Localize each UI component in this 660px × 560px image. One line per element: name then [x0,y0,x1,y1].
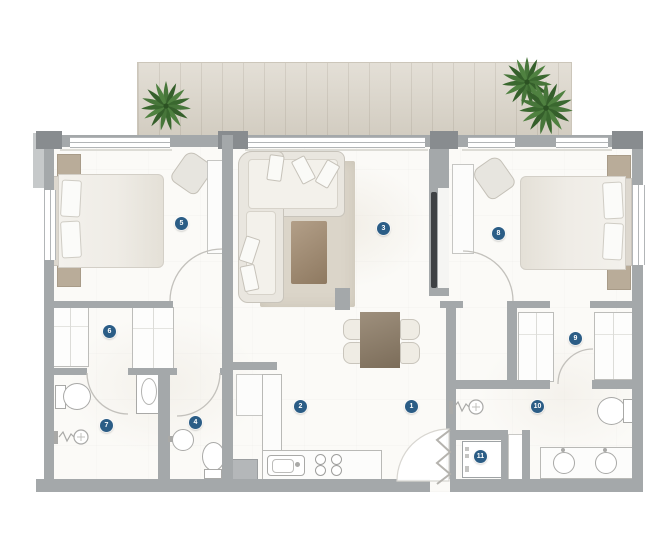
cooktop [312,452,346,477]
window [468,137,515,148]
wardrobe [52,307,89,367]
room-marker-bedroom-left[interactable]: 5 [175,217,188,230]
sink-basin [272,459,294,473]
coffee-table [291,221,327,284]
bedroom-console [452,164,474,254]
wall-segment [233,362,277,370]
wall-column [36,131,62,149]
dining-table [360,312,400,368]
toilet-tank [204,469,222,479]
room-marker-hall[interactable]: 1 [405,400,418,413]
room-marker-bedroom-right[interactable]: 8 [492,227,505,240]
wall-segment [507,301,517,386]
double-vanity [540,447,634,479]
sliding-door-window [248,137,425,148]
window [70,137,170,148]
wall-segment [222,135,233,307]
wall-segment [36,479,430,492]
washbasin-round [172,429,194,451]
bed-pillow [602,182,624,220]
wall-segment [52,368,87,375]
basin [141,378,157,405]
wall-segment [453,430,507,440]
room-marker-kitchen[interactable]: 2 [294,400,307,413]
room-marker-utility[interactable]: 11 [474,450,487,463]
window-sill [245,149,428,151]
floor-plan: 1 2 3 4 5 6 7 8 9 10 11 [0,0,660,560]
bed-pillow [60,180,82,218]
service-shaft [231,459,258,480]
wall-segment [522,430,530,481]
window-sill [462,149,612,151]
bed-pillow [602,223,624,261]
toilet [63,383,91,410]
fridge [236,374,264,416]
wardrobe [594,312,633,380]
wall-segment [450,479,643,492]
tv-screen [431,192,437,288]
faucet [295,462,300,467]
dining-chair [400,319,420,340]
bed-pillow [60,221,82,259]
wall-column [612,131,643,149]
plant-icon [140,80,192,132]
wall-segment [501,430,508,481]
wall-segment [220,368,233,375]
wall-segment [158,368,170,479]
window [556,137,608,148]
room-marker-bathroom-right[interactable]: 10 [531,400,544,413]
wall-segment [44,135,54,489]
wall-segment [446,380,550,389]
window [44,190,56,260]
wall-column [335,288,350,310]
dining-chair [400,342,420,364]
kitchen-sink [267,455,305,476]
tv-niche [438,188,449,288]
wardrobe [518,312,554,382]
wardrobe [132,307,174,371]
wall-segment [590,301,632,308]
wall-segment [592,380,632,389]
plant-icon [518,80,574,136]
toilet [597,397,626,425]
wall-column [430,131,458,149]
wall-segment [44,301,173,308]
window-sill [60,149,172,151]
room-marker-dressing-left[interactable]: 6 [103,325,116,338]
window [632,185,645,265]
room-marker-living-room[interactable]: 3 [377,222,390,235]
room-marker-bathroom-left[interactable]: 7 [100,419,113,432]
wall-segment [446,303,456,387]
room-marker-shower-room[interactable]: 4 [189,416,202,429]
room-marker-dressing-right[interactable]: 9 [569,332,582,345]
wall-segment [222,301,233,479]
